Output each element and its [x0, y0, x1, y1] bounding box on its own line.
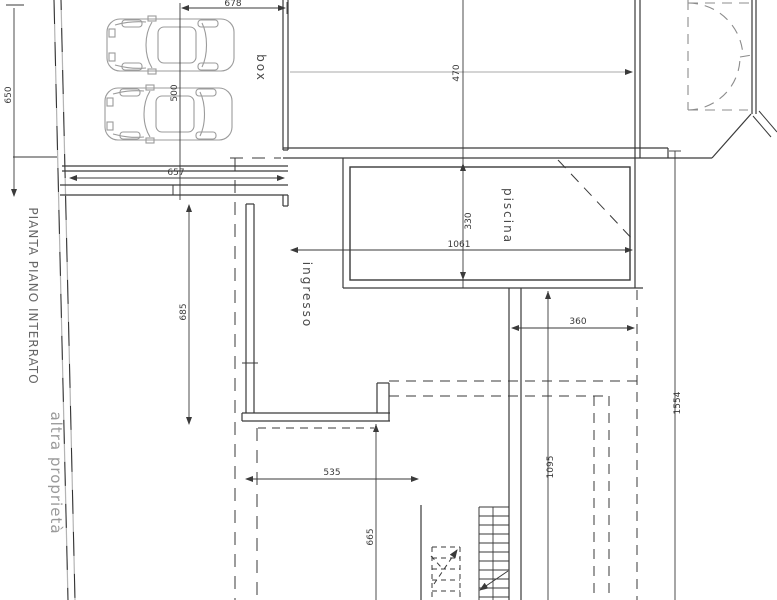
dim-1554: 1554: [673, 391, 683, 414]
car-2: [105, 85, 232, 143]
dim-1095: 1095: [546, 456, 556, 479]
label-box: box: [254, 54, 268, 82]
label-ingresso: ingresso: [300, 262, 314, 328]
dim-500: 500: [170, 84, 180, 101]
label-piscina: piscina: [501, 188, 515, 244]
dim-535: 535: [323, 468, 340, 478]
building-walls: [60, 0, 777, 600]
staircase-solid: [479, 507, 509, 600]
dim-657: 657: [167, 168, 184, 178]
dim-650: 650: [4, 86, 14, 103]
plan-title: PIANTA PIANO INTERRATO: [26, 207, 40, 384]
dim-330: 330: [464, 212, 474, 229]
double-door-dashed: [688, 0, 752, 110]
floor-plan: 678 650 657 500 685 470 330 1061 360 109…: [0, 0, 777, 600]
dim-665: 665: [366, 528, 376, 545]
dim-678: 678: [224, 0, 241, 9]
label-altra-proprieta: altra proprietà: [47, 411, 65, 534]
dim-1061: 1061: [448, 240, 471, 250]
pool-outline: [343, 158, 643, 288]
staircase-dashed: [431, 547, 460, 600]
car-1: [107, 16, 234, 74]
hidden-lines-dashed: [230, 158, 637, 600]
dim-360: 360: [569, 317, 586, 327]
dimension-lines: [6, 0, 681, 600]
dim-685: 685: [179, 303, 189, 320]
dim-470: 470: [452, 64, 462, 81]
pool-hidden-diagonal: [558, 160, 636, 243]
plan-drawing: 678 650 657 500 685 470 330 1061 360 109…: [0, 0, 777, 600]
pool-inner: [350, 167, 630, 280]
